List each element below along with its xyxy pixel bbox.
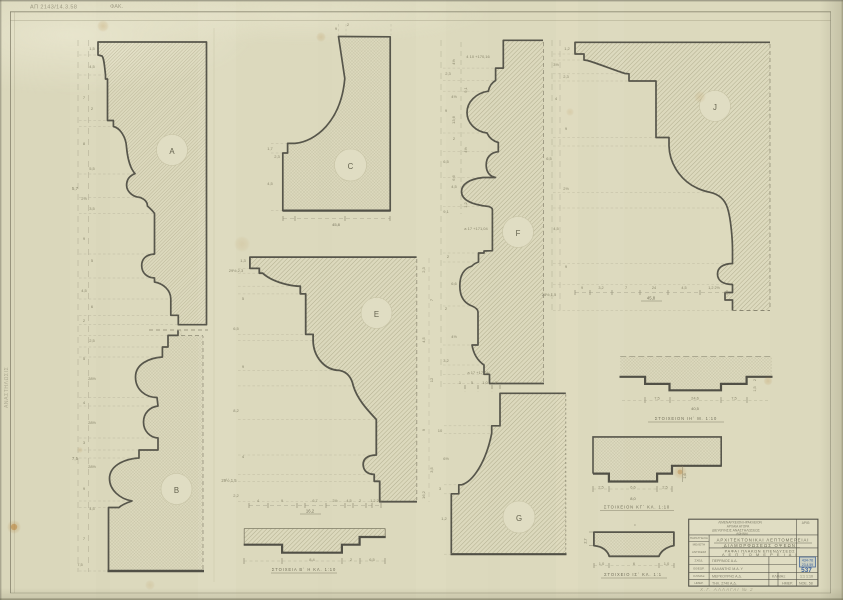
svg-text:9: 9 — [281, 499, 283, 503]
svg-text:1,5: 1,5 — [753, 386, 757, 391]
svg-text:1,0: 1,0 — [482, 380, 488, 385]
svg-text:1,7: 1,7 — [267, 146, 273, 151]
svg-text:4 10 +170,16: 4 10 +170,16 — [466, 54, 490, 59]
svg-text:ΠΑΡΑΓΓΕΛΙΑ: ΠΑΡΑΓΓΕΛΙΑ — [690, 536, 708, 540]
svg-text:ΚΑΛΑΝΤΗΣ Μ.Α. Υ: ΚΑΛΑΝΤΗΣ Μ.Α. Υ — [712, 567, 744, 571]
svg-text:4,5: 4,5 — [89, 64, 95, 69]
svg-text:2,5: 2,5 — [89, 338, 95, 343]
svg-text:40,5: 40,5 — [691, 406, 700, 411]
svg-text:7,5: 7,5 — [654, 396, 660, 401]
svg-text:ΑΡΙΘ.: ΑΡΙΘ. — [802, 521, 811, 525]
svg-text:13,6: 13,6 — [451, 115, 456, 124]
svg-text:7: 7 — [625, 286, 627, 290]
svg-text:5,5: 5,5 — [89, 166, 95, 171]
svg-text:F: F — [516, 229, 521, 238]
svg-text:1,0: 1,0 — [664, 561, 670, 566]
svg-text:28½,1,5: 28½,1,5 — [542, 292, 557, 297]
svg-text:ΚΛΙΜΑΞ: ΚΛΙΜΑΞ — [693, 574, 704, 578]
svg-text:16,2: 16,2 — [421, 490, 426, 499]
svg-text:7,5: 7,5 — [77, 562, 83, 567]
svg-text:1,5: 1,5 — [89, 46, 95, 51]
svg-text:9: 9 — [581, 286, 583, 290]
svg-text:2: 2 — [359, 499, 361, 503]
svg-text:2,3: 2,3 — [563, 74, 569, 79]
svg-text:16,2: 16,2 — [306, 509, 315, 514]
svg-text:9,1: 9,1 — [443, 209, 449, 214]
svg-text:ΕΘΕΩΡ.: ΕΘΕΩΡ. — [693, 567, 704, 571]
svg-text:5,7: 5,7 — [72, 186, 79, 191]
svg-text:8,4: 8,4 — [309, 557, 315, 562]
svg-text:24: 24 — [652, 286, 656, 290]
svg-text:ΗΜΕΡ.: ΗΜΕΡ. — [782, 581, 793, 585]
svg-text:ΜΕΛΕΤΗ: ΜΕΛΕΤΗ — [693, 543, 706, 547]
svg-text:2,5: 2,5 — [662, 485, 668, 490]
svg-text:4: 4 — [257, 499, 259, 503]
svg-text:1,2 2½: 1,2 2½ — [370, 499, 382, 503]
svg-text:4½: 4½ — [451, 334, 457, 339]
svg-text:ΑΡΧΙΤΕΚΤΟΝΙΚΑΙ ΛΕΠΤΟΜΕΡΕΙΑΙ: ΑΡΧΙΤΕΚΤΟΝΙΚΑΙ ΛΕΠΤΟΜΕΡΕΙΑΙ — [717, 538, 810, 543]
svg-text:ΦΑΚ.: ΦΑΚ. — [110, 4, 124, 10]
svg-text:ΑΠ 2143/14.3.58: ΑΠ 2143/14.3.58 — [30, 5, 77, 11]
svg-text:1,2: 1,2 — [463, 201, 468, 207]
svg-text:6½: 6½ — [443, 456, 449, 461]
svg-text:ΗΜΕΡ.: ΗΜΕΡ. — [694, 581, 703, 585]
svg-text:7,5: 7,5 — [72, 456, 79, 461]
svg-text:6,7: 6,7 — [312, 499, 317, 503]
svg-text:6,5: 6,5 — [443, 159, 449, 164]
svg-text:4,5: 4,5 — [553, 226, 559, 231]
svg-text:4½: 4½ — [463, 147, 468, 153]
svg-text:4,5: 4,5 — [421, 336, 426, 342]
svg-text:ΔΙΑΜΟΡΦΩΣΕΩΣ ΟΨΕΩΝ: ΔΙΑΜΟΡΦΩΣΕΩΣ ΟΨΕΩΝ — [724, 543, 796, 548]
svg-text:28½: 28½ — [88, 376, 96, 381]
svg-text:4,5: 4,5 — [267, 181, 273, 186]
svg-text:2: 2 — [753, 379, 757, 381]
svg-text:ΝΟΕ. 58: ΝΟΕ. 58 — [799, 581, 813, 585]
svg-text:B: B — [174, 486, 179, 495]
svg-text:2,2: 2,2 — [233, 493, 239, 498]
svg-text:G: G — [516, 514, 522, 523]
svg-text:12: 12 — [429, 377, 434, 382]
svg-text:2½: 2½ — [81, 196, 87, 201]
svg-text:3,5: 3,5 — [429, 466, 434, 472]
svg-text:4,5: 4,5 — [89, 506, 95, 511]
svg-text:ΜΕΡΚΟΥΡΗΣ Α.Δ.: ΜΕΡΚΟΥΡΗΣ Α.Δ. — [712, 574, 742, 578]
svg-text:4½: 4½ — [451, 59, 456, 65]
svg-text:28½: 28½ — [88, 464, 96, 469]
svg-text:ΣΤΟΙΧΕΙΟΝ ΚΓ´ ΚΛ. 1:10: ΣΤΟΙΧΕΙΟΝ ΚΓ´ ΚΛ. 1:10 — [604, 505, 670, 510]
svg-text:3,2: 3,2 — [443, 358, 449, 363]
svg-text:29½,1,5: 29½,1,5 — [221, 478, 237, 483]
svg-text:4,5: 4,5 — [451, 184, 457, 189]
svg-text:3½: 3½ — [553, 62, 559, 67]
svg-text:29½,2,3: 29½,2,3 — [229, 268, 244, 273]
svg-text:ΣΤΟΙΧΕΙΑ Β´ Η ΚΛ. 1:10: ΣΤΟΙΧΕΙΑ Β´ Η ΚΛ. 1:10 — [272, 567, 336, 572]
svg-text:537: 537 — [801, 567, 812, 574]
svg-text:4,5: 4,5 — [81, 288, 87, 293]
svg-text:1,3: 1,3 — [240, 258, 246, 263]
svg-text:2,5: 2,5 — [598, 485, 604, 490]
svg-text:7,5: 7,5 — [731, 396, 737, 401]
svg-text:1,0: 1,0 — [599, 561, 605, 566]
svg-text:4½: 4½ — [451, 94, 457, 99]
svg-text:ΠΕΡΡΑΙΟΣ Α.Δ.: ΠΕΡΡΑΙΟΣ Α.Δ. — [712, 559, 738, 563]
svg-text:ΣΧΕΔ.: ΣΧΕΔ. — [695, 559, 704, 563]
svg-text:a 17 +171,04: a 17 +171,04 — [464, 226, 488, 231]
svg-text:J: J — [713, 103, 717, 112]
svg-text:4,5: 4,5 — [681, 286, 686, 290]
svg-text:ΤΗΛ. 2740 Α.Δ.: ΤΗΛ. 2740 Α.Δ. — [712, 581, 737, 585]
svg-text:ΚΛΙΜΑΞ: ΚΛΙΜΑΞ — [772, 574, 786, 578]
svg-text:6,6: 6,6 — [630, 485, 636, 490]
svg-text:ΑΝΤΙΚΕΙΜ: ΑΝΤΙΚΕΙΜ — [692, 550, 707, 554]
svg-text:10: 10 — [438, 428, 443, 433]
svg-text:6,6: 6,6 — [451, 174, 456, 180]
svg-text:24,6: 24,6 — [691, 396, 700, 401]
svg-text:8,0: 8,0 — [630, 496, 636, 501]
svg-text:2,3: 2,3 — [445, 71, 451, 76]
svg-text:2,7: 2,7 — [584, 538, 588, 543]
svg-text:4,5: 4,5 — [346, 499, 351, 503]
svg-text:1,2 2½: 1,2 2½ — [708, 286, 720, 290]
svg-text:6,5: 6,5 — [369, 557, 375, 562]
svg-text:45,8: 45,8 — [647, 296, 656, 301]
svg-text:Λ Ε Π Τ Ο Μ Ε Ρ Ε Ι Α Ι: Λ Ε Π Τ Ο Μ Ε Ρ Ε Ι Α Ι — [722, 553, 798, 557]
svg-text:1,2: 1,2 — [441, 516, 447, 521]
svg-text:3,2: 3,2 — [598, 286, 603, 290]
svg-text:45,8: 45,8 — [332, 222, 341, 227]
svg-text:a 17 +17,04: a 17 +17,04 — [467, 370, 489, 375]
svg-text:1,2: 1,2 — [564, 46, 570, 51]
svg-text:6,5: 6,5 — [233, 326, 239, 331]
svg-text:2,3: 2,3 — [421, 266, 426, 272]
svg-text:ΣΤΟΙΧΕΙΟ ΙΣ´ ΚΛ. 1:1: ΣΤΟΙΧΕΙΟ ΙΣ´ ΚΛ. 1:1 — [604, 572, 662, 577]
svg-text:6,5: 6,5 — [546, 156, 552, 161]
svg-text:2½: 2½ — [332, 499, 338, 503]
svg-text:9,1: 9,1 — [463, 86, 468, 92]
svg-text:3,5: 3,5 — [89, 206, 95, 211]
svg-text:ΣΤΟΙΧΕΙΟΝ ΙΗ´ Μ. 1:10: ΣΤΟΙΧΕΙΟΝ ΙΗ´ Μ. 1:10 — [655, 416, 717, 421]
svg-text:A: A — [169, 147, 175, 156]
svg-text:ΑΘΗΝΑΙ: ΑΘΗΝΑΙ — [736, 531, 748, 535]
svg-text:8,2: 8,2 — [233, 408, 239, 413]
svg-text:6,6: 6,6 — [451, 281, 457, 286]
svg-text:1:1 1:10: 1:1 1:10 — [800, 574, 813, 578]
svg-text:E: E — [374, 310, 379, 319]
svg-text:2,3: 2,3 — [274, 154, 280, 159]
svg-text:28½: 28½ — [88, 420, 96, 425]
svg-text:C: C — [348, 162, 354, 171]
svg-text:2½: 2½ — [563, 186, 569, 191]
svg-text:ΑΝΑΣΤΗΛΩΣΙΣ: ΑΝΑΣΤΗΛΩΣΙΣ — [4, 367, 10, 408]
